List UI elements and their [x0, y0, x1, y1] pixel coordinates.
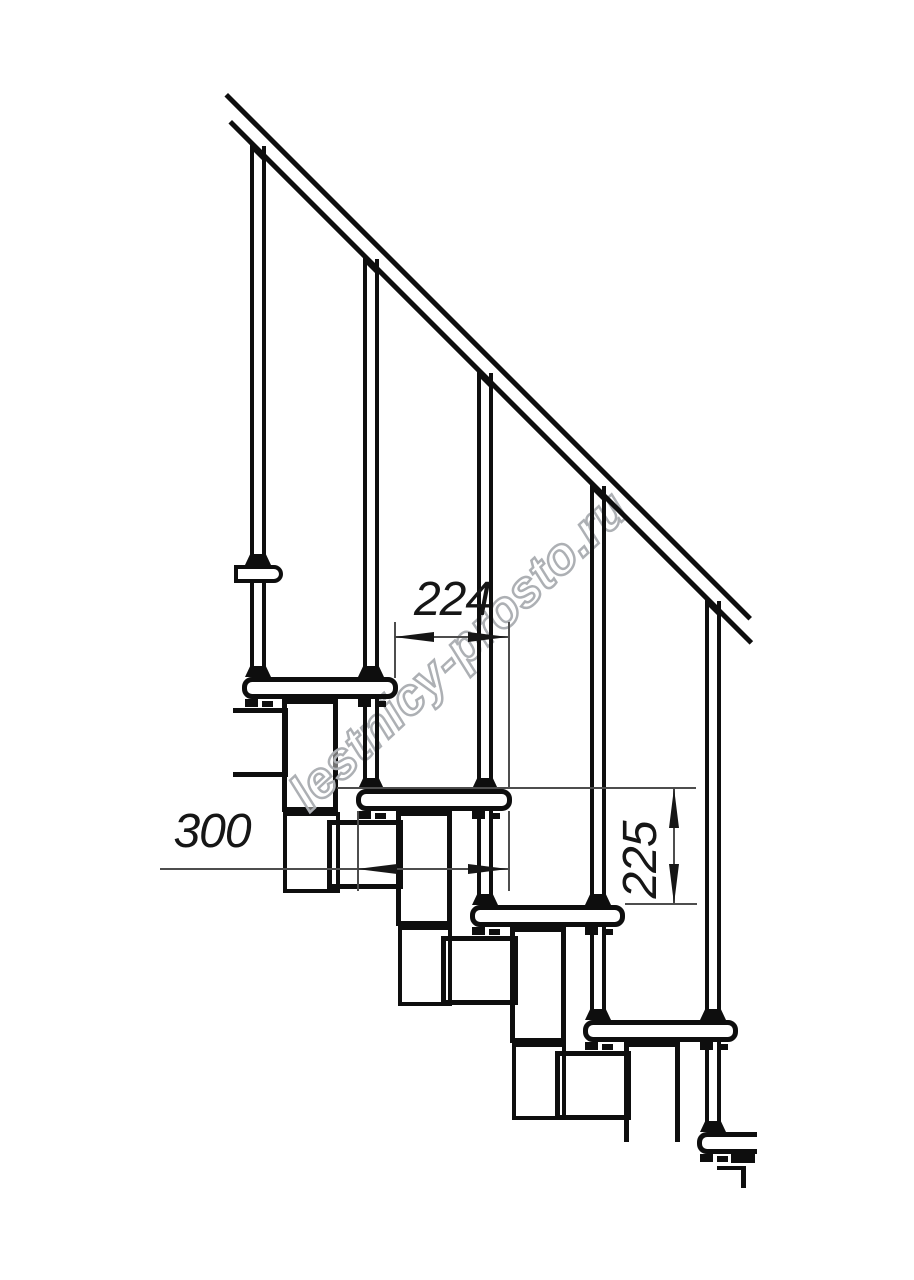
rod-tread-connector [700, 1121, 726, 1132]
baluster-rod-1-upper [250, 146, 266, 565]
rod-tread-connector [472, 894, 498, 905]
baluster-rod-4-lower [590, 927, 606, 1020]
dim-label-224: 224 [400, 576, 505, 624]
tread-feet [245, 699, 258, 707]
baluster-rod-2-lower [363, 699, 379, 789]
tread-feet [472, 811, 485, 819]
module-box-q5-cut-side [741, 1166, 746, 1188]
rod-tread-connector [585, 1009, 611, 1020]
staircase-drawing: 224 300 225 lestnicy-prosto.ru [0, 0, 914, 1280]
dim-224-extension-left [394, 622, 396, 678]
landing-bracket [234, 565, 283, 583]
rod-tread-connector [585, 894, 611, 905]
tread-feet [700, 1042, 713, 1050]
tread-4 [583, 1020, 738, 1042]
tread-1 [242, 677, 398, 699]
tread-feet [358, 811, 371, 819]
dim-225-extension-top [337, 787, 696, 789]
module-box-p3 [441, 936, 518, 1005]
baluster-rod-4-upper [590, 486, 606, 905]
baluster-rod-5-lower [705, 1042, 721, 1132]
baluster-rod-1-lower [250, 583, 266, 677]
rod-tread-connector [358, 666, 384, 677]
tread-feet [358, 699, 371, 707]
rod-tread-connector [245, 666, 271, 677]
rod-tread-connector [245, 554, 271, 565]
rod-tread-connector [700, 1009, 726, 1020]
dim-224-extension-right [508, 622, 510, 789]
tread-feet [472, 927, 485, 935]
dim-300-extension-left [357, 811, 359, 891]
module-box-q3 [510, 927, 566, 1043]
baluster-rod-5-upper [705, 601, 721, 1020]
module-box-q4 [624, 1042, 680, 1142]
baluster-rod-3-lower [477, 811, 493, 905]
dim-300-arrowhead-left [357, 864, 397, 874]
tread-2 [356, 789, 512, 811]
module-box-p4 [555, 1051, 631, 1120]
tread-5 [697, 1132, 757, 1154]
dim-label-300: 300 [162, 808, 262, 856]
dim-225-arrowhead-top [669, 788, 679, 828]
tread-feet [585, 1042, 598, 1050]
dim-label-225: 225 [617, 810, 665, 910]
dim-224-arrowhead-right [468, 632, 508, 642]
tread-3 [470, 905, 625, 927]
dim-224-arrowhead-left [394, 632, 434, 642]
baluster-rod-2-upper [363, 259, 379, 677]
dim-300-arrowhead-right [468, 864, 508, 874]
dim-225-arrowhead-bottom [669, 864, 679, 904]
dim-300-extension-right [508, 811, 510, 891]
tread-feet [585, 927, 598, 935]
tread-feet [700, 1154, 713, 1162]
tread-feet [731, 1153, 755, 1163]
dim-300-line [160, 868, 508, 870]
module-box-p2 [327, 820, 403, 889]
